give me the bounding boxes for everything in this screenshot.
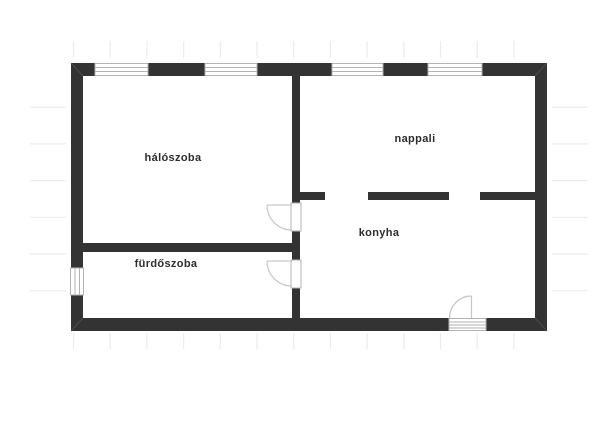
room-label-konyha: konyha (359, 227, 400, 239)
wall-left-segment (71, 63, 83, 268)
interior-walls (83, 76, 535, 318)
wall-top-segment (383, 63, 428, 76)
wall-kitchen-divider-segment (480, 192, 535, 200)
window-1 (95, 64, 148, 76)
wall-vertical-segment (292, 231, 300, 260)
wall-bottom-segment (486, 318, 547, 331)
window-3 (332, 64, 383, 76)
door-haloszoba (267, 203, 301, 231)
entry-door (449, 296, 486, 331)
windows (71, 64, 483, 296)
wall-right (535, 63, 547, 331)
wall-kitchen-divider-segment (300, 192, 325, 200)
room-label-haloszoba: hálószoba (145, 152, 202, 164)
floor-plan: hálószoba nappali konyha fürdőszoba (0, 0, 600, 425)
wall-vertical-segment (292, 288, 300, 318)
wall-top-segment (148, 63, 205, 76)
room-label-furdoszoba: fürdőszoba (135, 258, 198, 270)
wall-bathroom-divider (83, 243, 292, 252)
wall-kitchen-divider-segment (368, 192, 449, 200)
floor-plan-canvas: hálószoba nappali konyha fürdőszoba (0, 0, 600, 425)
window-5-left-wall (71, 268, 84, 295)
window-2 (205, 64, 257, 76)
window-4 (428, 64, 482, 76)
wall-vertical-segment (292, 76, 300, 203)
wall-bottom-segment (71, 318, 449, 331)
wall-top-segment (257, 63, 332, 76)
door-furdoszoba (267, 260, 301, 288)
room-label-nappali: nappali (395, 133, 436, 145)
